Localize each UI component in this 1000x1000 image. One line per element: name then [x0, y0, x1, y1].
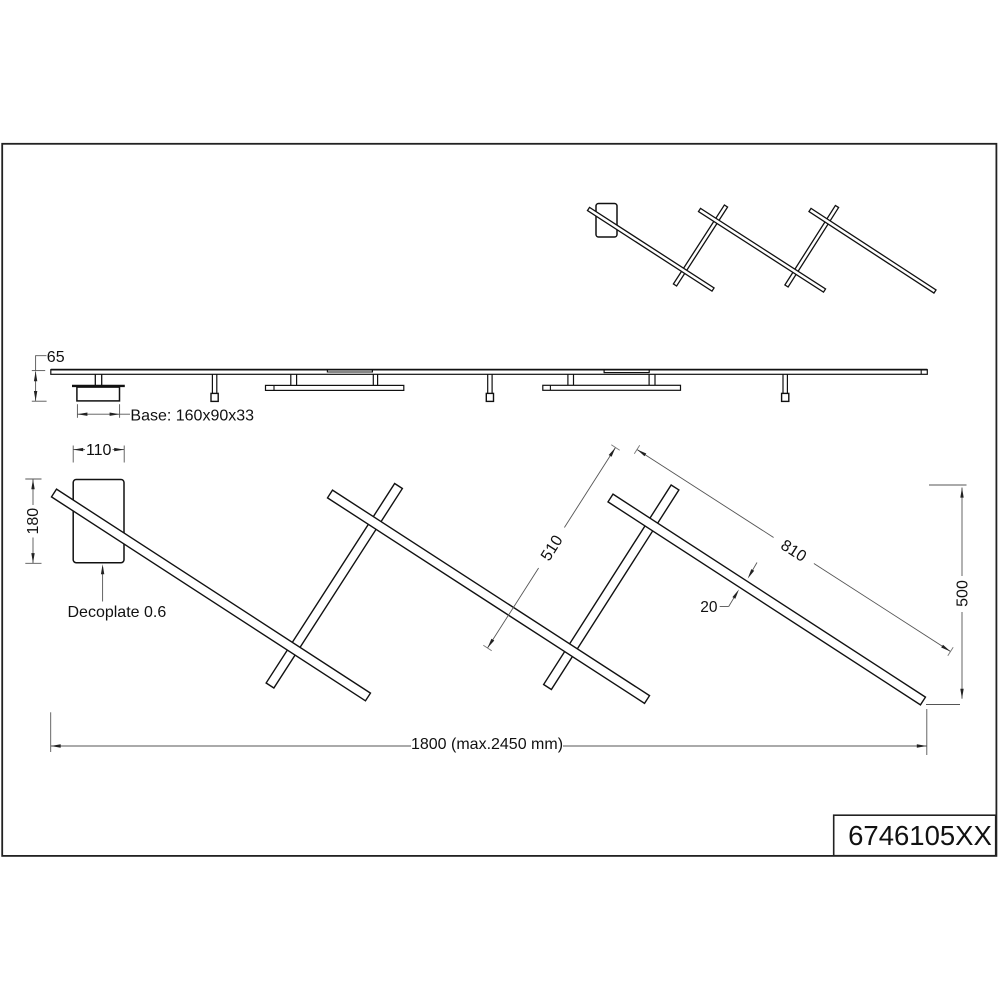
svg-text:Base: 160x90x33: Base: 160x90x33: [130, 407, 254, 424]
svg-text:65: 65: [47, 349, 65, 366]
svg-text:Decoplate 0.6: Decoplate 0.6: [68, 604, 167, 621]
svg-text:500: 500: [955, 580, 972, 607]
svg-text:180: 180: [25, 508, 42, 535]
svg-text:1800 (max.2450 mm): 1800 (max.2450 mm): [411, 736, 563, 753]
svg-text:810: 810: [777, 537, 809, 566]
svg-text:20: 20: [700, 599, 718, 616]
svg-text:6746105XX: 6746105XX: [848, 820, 992, 851]
svg-text:510: 510: [538, 532, 567, 564]
svg-text:110: 110: [86, 442, 112, 459]
